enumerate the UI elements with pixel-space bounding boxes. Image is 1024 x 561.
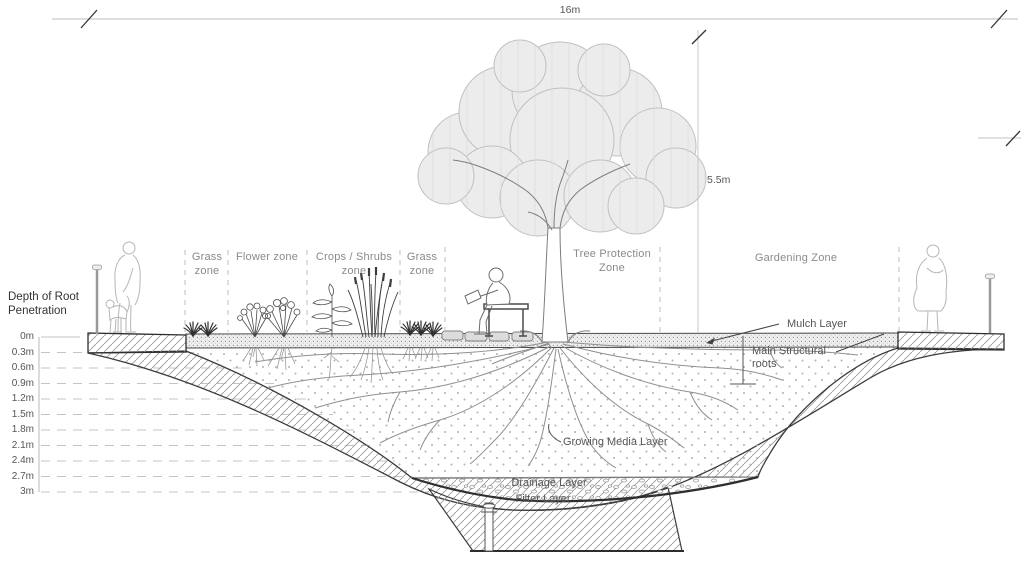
walkway-slab-right <box>898 332 1004 350</box>
bollard-right <box>986 274 995 333</box>
depth-tick-06m: 0.6m <box>0 362 34 373</box>
depth-tick-03m: 0.3m <box>0 347 34 358</box>
layer-label-structural-roots: Main Structural roots <box>752 345 826 371</box>
depth-tick-24m: 2.4m <box>0 455 34 466</box>
zone-label-crops-shrubs: Crops / Shrubs zone <box>316 251 392 279</box>
depth-tick-27m: 2.7m <box>0 471 34 482</box>
zone-label-grass-1: Grass zone <box>192 251 222 279</box>
depth-tick-09m: 0.9m <box>0 378 34 389</box>
depth-tick-15m: 1.5m <box>0 409 34 420</box>
layer-label-drainage: Drainage Layer <box>511 477 586 490</box>
zone-label-grass-2: Grass zone <box>407 251 437 279</box>
layer-label-mulch: Mulch Layer <box>787 318 847 331</box>
depth-scale-title: Depth of Root Penetration <box>8 291 118 319</box>
section-diagram-page: { "dimensions": { "width_label": "16m", … <box>0 0 1024 561</box>
person-sitting <box>465 268 510 334</box>
dimension-width-label: 16m <box>560 4 580 16</box>
dimension-top <box>52 10 1018 28</box>
zone-label-flower: Flower zone <box>236 251 298 265</box>
zone-label-tree-protection: Tree Protection Zone <box>573 248 651 276</box>
walkway-slab-left <box>88 333 186 353</box>
dimension-height-label: 5.5m <box>707 174 730 186</box>
depth-tick-3m: 3m <box>0 486 34 497</box>
depth-tick-18m: 1.8m <box>0 424 34 435</box>
tree-canopy <box>415 38 710 238</box>
zone-label-gardening: Gardening Zone <box>755 252 837 266</box>
section-drawing: Depth of Root Penetration 0m 0.3m 0.6m 0… <box>0 0 1024 561</box>
layer-label-growing-media: Growing Media Layer <box>563 436 668 449</box>
dimension-right-partial <box>978 131 1021 146</box>
depth-tick-21m: 2.1m <box>0 440 34 451</box>
person-standing <box>914 245 947 331</box>
layer-label-filter: Filter Layer <box>515 493 570 506</box>
depth-tick-12m: 1.2m <box>0 393 34 404</box>
depth-tick-0m: 0m <box>0 331 34 342</box>
